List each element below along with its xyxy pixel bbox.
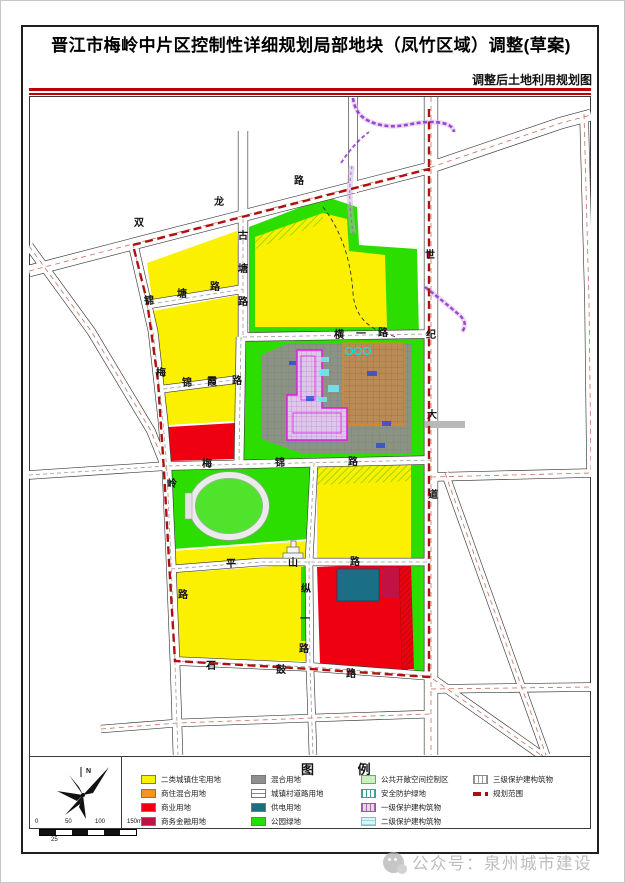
legend-swatch-village-road <box>251 789 266 798</box>
legend-swatch-business-finance <box>141 817 156 826</box>
road-label: 平 <box>226 558 236 570</box>
legend-item-label: 商住混合用地 <box>161 790 206 798</box>
legend-item-label: 一级保护建构筑物 <box>381 804 441 812</box>
legend-swatch-mixed-commercial-residential <box>141 789 156 798</box>
road-label: 鼓 <box>276 663 287 676</box>
road-label: 塘 <box>238 262 248 275</box>
road-label: 古 <box>238 229 248 242</box>
road-label: 锦 <box>275 456 285 469</box>
road-label: 路 <box>294 174 305 187</box>
plan-sheet-page: 晋江市梅岭中片区控制性详细规划局部地块（凤竹区域）调整(草案) 调整后土地利用规… <box>0 0 625 883</box>
title-divider-top <box>29 88 591 91</box>
road-label: 山 <box>288 556 298 569</box>
road-label: 双 <box>134 217 144 229</box>
road-label: 横 <box>334 328 345 341</box>
scale-tick: 100 <box>95 819 105 825</box>
road-label: 路 <box>299 642 310 655</box>
legend-item-label: 商务金融用地 <box>161 818 206 826</box>
road-label: 一 <box>356 329 366 340</box>
legend-swatch-protection-level2 <box>361 817 376 826</box>
legend-swatch-power-supply <box>251 803 266 812</box>
legend-title: 图 例 <box>301 759 391 778</box>
legend-swatch-protection-level3 <box>473 775 488 784</box>
road-label: 石 <box>205 660 216 672</box>
scale-sub-label: 25 <box>51 837 58 843</box>
road-label: 梅 <box>202 457 212 470</box>
legend-swatch-protection-level1 <box>361 803 376 812</box>
watermark-text: 公众号：泉州城市建设 <box>412 850 592 874</box>
road-label: 霞 <box>207 375 218 388</box>
legend-item-label: 供电用地 <box>271 804 301 812</box>
legend-item-label: 公共开敞空间控制区 <box>381 776 449 784</box>
road-label: 路 <box>346 667 357 680</box>
legend-item-label: 商业用地 <box>161 804 191 812</box>
legend-item-label: 规划范围 <box>493 790 523 798</box>
legend-item-label: 公园绿地 <box>271 818 301 826</box>
road-label: 梅 <box>156 366 166 379</box>
legend-swatch-residential <box>141 775 156 784</box>
road-label: 路 <box>378 326 389 339</box>
scale-tick: 50 <box>65 819 72 825</box>
road-label: 纪 <box>426 328 436 341</box>
wechat-icon <box>383 852 404 873</box>
watermark: 公众号：泉州城市建设 <box>383 850 592 874</box>
scale-bar <box>39 829 137 836</box>
legend-swatch-mixed-use <box>251 775 266 784</box>
scale-bar-ticks: 0 50 100 150m <box>35 819 143 827</box>
road-label: 岭 <box>167 477 177 490</box>
road-label: 锦 <box>144 294 154 307</box>
compass-n-label: N <box>86 768 91 775</box>
road-label: 路 <box>232 374 243 387</box>
scale-tick: 0 <box>35 819 38 825</box>
title-divider-bottom <box>29 93 591 95</box>
page-subtitle: 调整后土地利用规划图 <box>472 71 592 88</box>
road-label: 世 <box>425 248 435 261</box>
legend-swatch-planning-boundary <box>473 792 488 796</box>
planning-map: 双龙路古塘路锦塘路锦霞路梅岭路世纪大道横一路梅锦路平山路纵一路石鼓路 <box>29 96 591 756</box>
legend-item-label: 二级保护建构筑物 <box>381 818 441 826</box>
legend-item-label: 混合用地 <box>271 776 301 784</box>
footbridge <box>425 421 465 428</box>
legend-swatch-safety-green <box>361 789 376 798</box>
road-label: 路 <box>348 455 359 468</box>
legend-swatch-commercial <box>141 803 156 812</box>
road-label: 塘 <box>177 287 187 300</box>
road-label: 路 <box>350 555 361 568</box>
road-label: 路 <box>178 588 189 601</box>
legend-item-label: 二类城镇住宅用地 <box>161 776 221 784</box>
road-label: 路 <box>238 295 249 308</box>
road-label: 大 <box>427 408 437 421</box>
legend-top-border <box>29 756 591 757</box>
road-label: 锦 <box>182 376 192 389</box>
road-label: 路 <box>210 280 221 293</box>
legend-item-label: 城镇村道路用地 <box>271 790 324 798</box>
parcels-layer <box>147 197 425 673</box>
legend-left-divider <box>121 756 122 829</box>
page-title: 晋江市梅岭中片区控制性详细规划局部地块（凤竹区域）调整(草案) <box>25 31 597 56</box>
north-arrow-icon: N <box>53 763 115 821</box>
legend-swatch-park-green <box>251 817 266 826</box>
legend-swatch-open-space <box>361 775 376 784</box>
road-label: 龙 <box>213 195 224 208</box>
scale-tick: 150m <box>127 819 142 825</box>
road-label: 道 <box>428 488 438 501</box>
road-label: 纵 <box>301 582 311 595</box>
legend-item-label: 三级保护建构筑物 <box>493 776 553 784</box>
road-label: 一 <box>300 614 310 625</box>
legend-item-label: 安全防护绿地 <box>381 790 426 798</box>
